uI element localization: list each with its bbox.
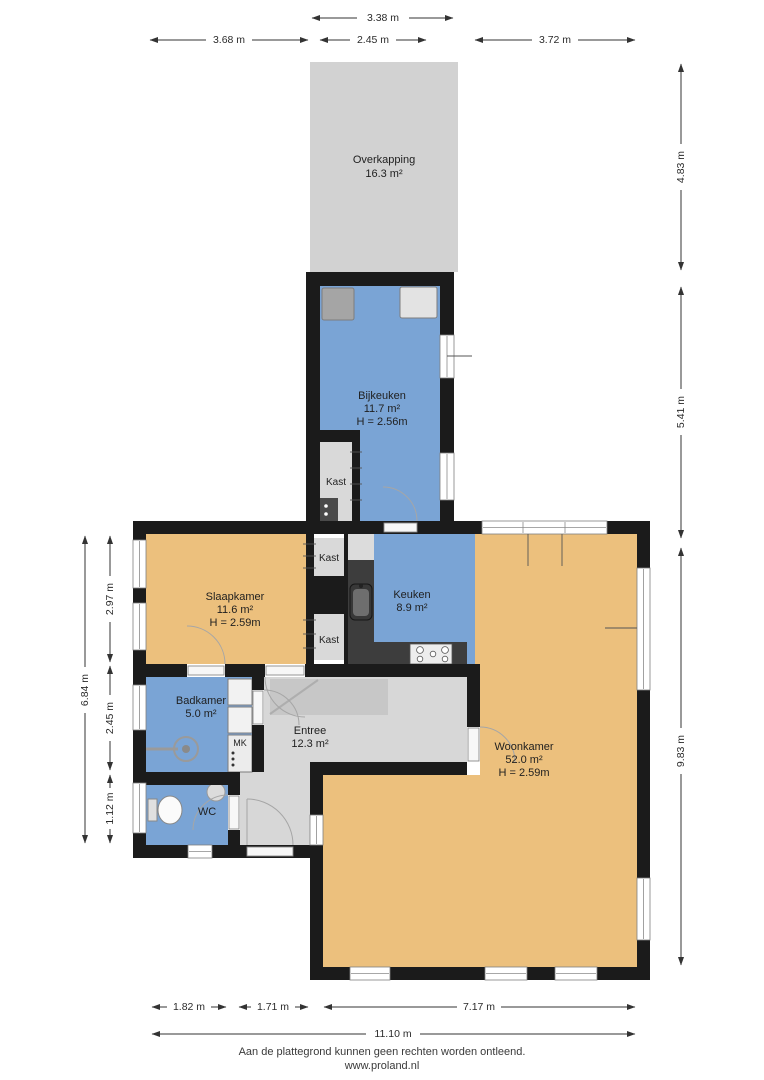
dim-top-right: 3.72 m [539,34,571,46]
label-bijkeuken-height: H = 2.56m [356,416,407,428]
label-bijkeuken-area: 11.7 m² [364,403,401,415]
toilet-icon [158,796,182,824]
stairs-area [270,679,388,715]
dim-left-total: 6.84 m [79,674,91,706]
label-kast-1: Kast [319,553,339,564]
label-woonkamer-area: 52.0 m² [505,754,543,766]
footer-website: www.proland.nl [344,1060,420,1072]
footer: Aan de plattegrond kunnen geen rechten w… [239,1046,526,1072]
dim-top-overkapping: 3.38 m [367,12,399,24]
toilet-tank [148,799,157,821]
dim-right-bijkeuken: 5.41 m [675,396,687,428]
fridge-icon [348,534,374,560]
appliance-icon [400,287,437,318]
door-slaapkamer [266,666,304,675]
label-keuken-name: Keuken [393,589,430,601]
dim-left-wc: 1.12 m [104,792,116,824]
footer-disclaimer: Aan de plattegrond kunnen geen rechten w… [239,1046,526,1058]
label-overkapping-name: Overkapping [353,154,415,166]
dim-left-badkamer: 2.45 m [104,702,116,734]
floorplan-page: Overkapping 16.3 m² Bijkeuken 11.7 m² H … [0,0,764,1080]
room-overkapping-floor [310,62,458,272]
door-slaapkamer-badkamer [188,666,224,675]
dim-top-left: 3.68 m [213,34,245,46]
label-badkamer-name: Badkamer [176,695,226,707]
dim-right-house: 9.83 m [675,735,687,767]
label-overkapping-area: 16.3 m² [365,168,403,180]
door-woonkamer [468,728,479,761]
bath-cabinet-2 [228,707,252,733]
mk-meter-dots [232,752,235,767]
label-badkamer-area: 5.0 m² [185,708,217,720]
label-woonkamer-height: H = 2.59m [498,767,549,779]
label-kast-2: Kast [319,635,339,646]
label-slaapkamer-area: 11.6 m² [217,604,254,616]
label-mk: MK [233,738,247,748]
door-wc [229,796,239,829]
label-kast-bijkeuken: Kast [326,477,346,488]
label-wc: WC [198,806,216,818]
door-badkamer [253,691,263,724]
dim-top-middle: 2.45 m [357,34,389,46]
label-bijkeuken-name: Bijkeuken [358,390,406,402]
washer-icon [322,288,354,320]
dim-bottom-total: 11.10 m [374,1028,411,1040]
washbasin-icon [207,783,225,801]
bath-cabinet-1 [228,679,252,705]
dim-bottom-2: 1.71 m [257,1001,289,1013]
label-entree-area: 12.3 m² [291,738,329,750]
label-keuken-area: 8.9 m² [396,602,428,614]
floorplan-drawing: Overkapping 16.3 m² Bijkeuken 11.7 m² H … [0,0,764,1080]
dim-bottom-1: 1.82 m [173,1001,205,1013]
dim-right-overkapping: 4.83 m [675,151,687,183]
dim-bottom-3: 7.17 m [463,1001,495,1013]
dim-left-slaapkamer: 2.97 m [104,583,116,615]
label-slaapkamer-height: H = 2.59m [209,617,260,629]
label-entree-name: Entree [294,725,326,737]
meter-box-icon [320,498,338,521]
door-bijkeuken-keuken [384,523,417,532]
label-slaapkamer-name: Slaapkamer [206,591,265,603]
label-woonkamer-name: Woonkamer [494,741,553,753]
front-door [247,847,293,856]
